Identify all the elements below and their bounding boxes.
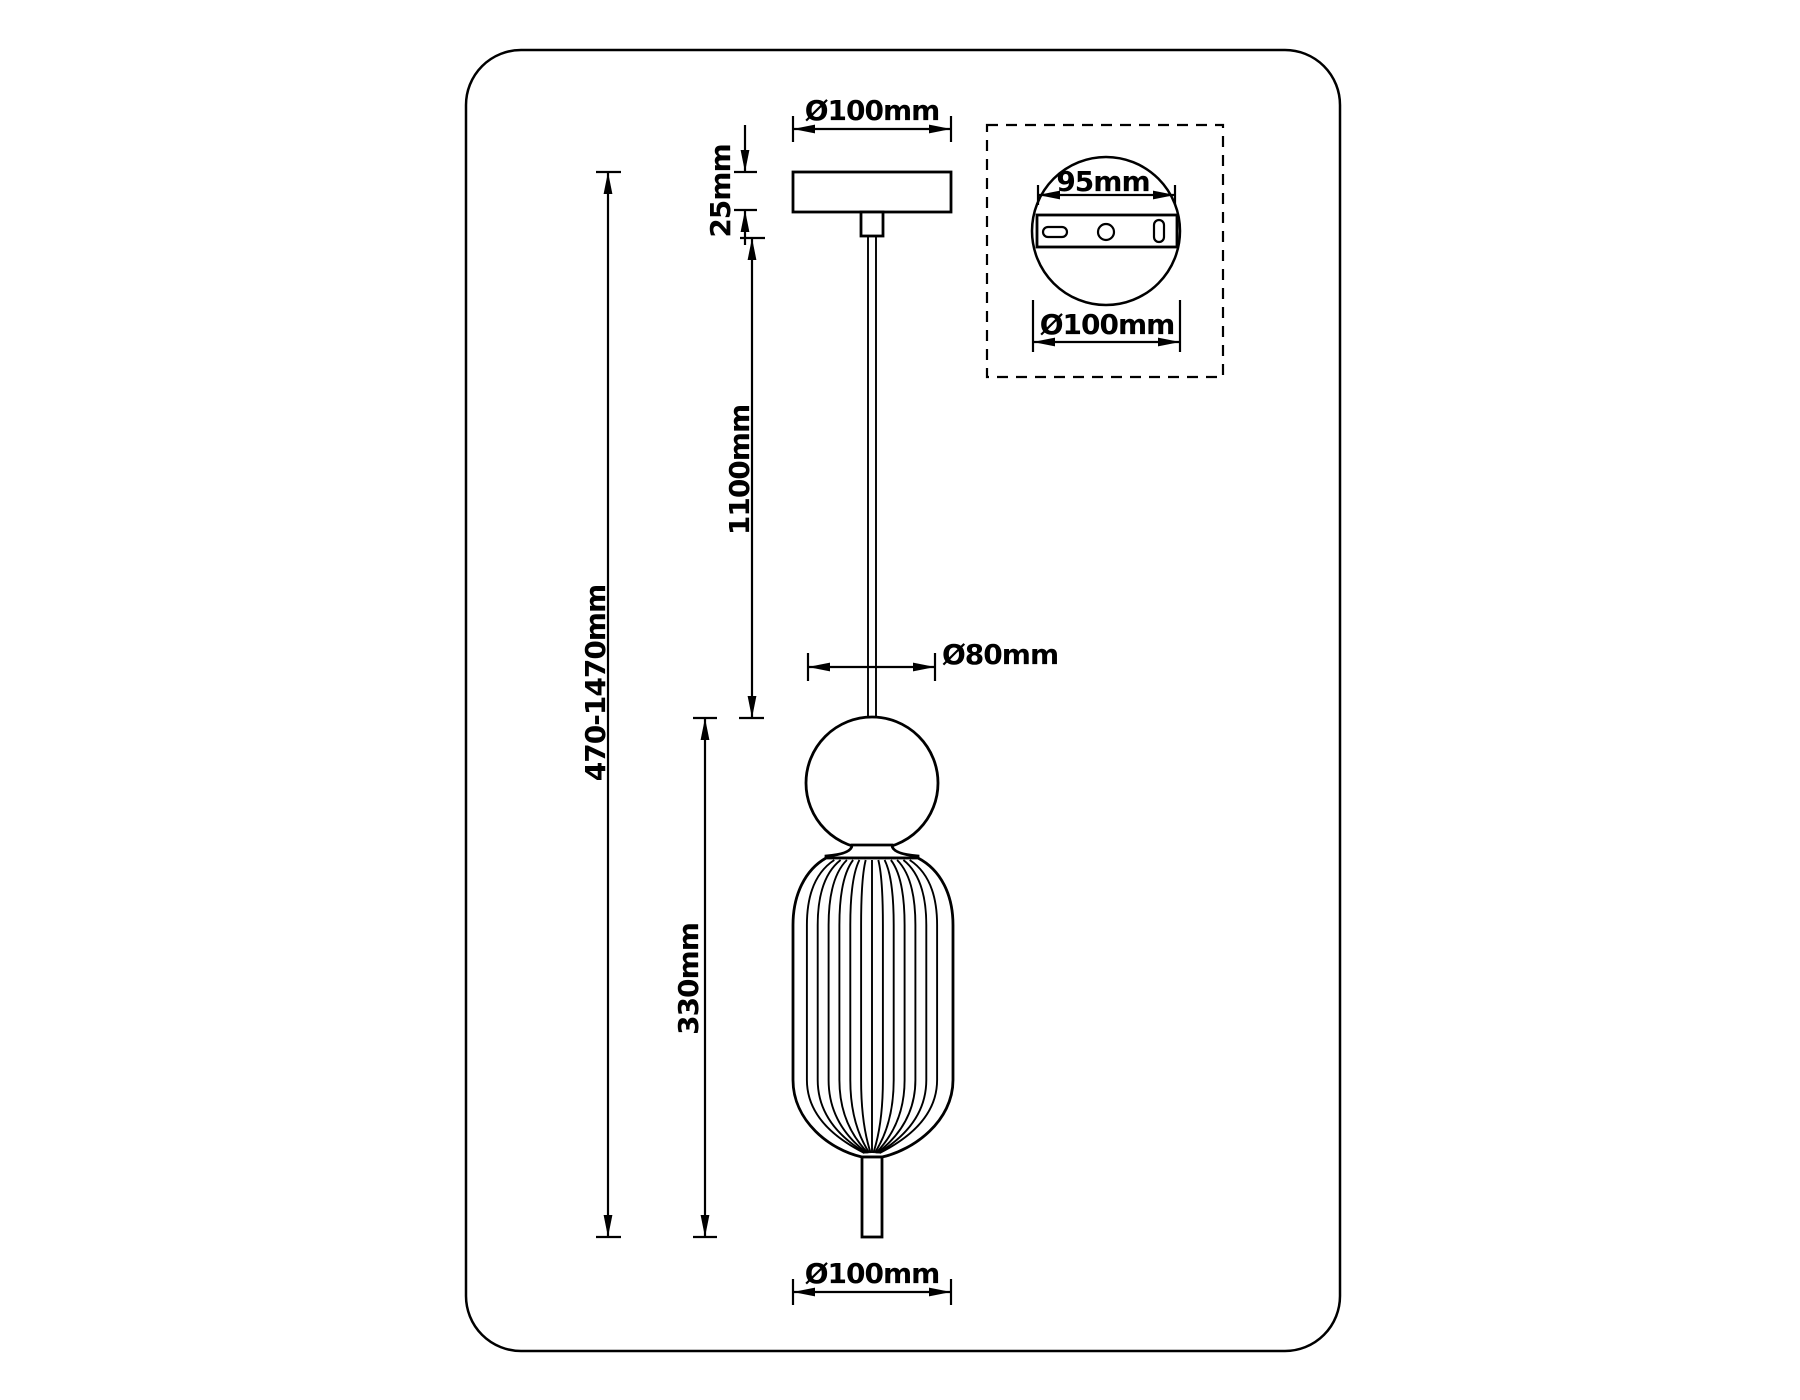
dim-plate-diameter: Ø100mm <box>1033 300 1180 352</box>
pendant-lamp-front-view <box>793 172 953 1237</box>
suspension-cable <box>868 236 876 719</box>
pendant-lamp-dimension-diagram: 95mm Ø100mm Ø100mm 25mm 1100mm <box>0 0 1800 1400</box>
technical-drawing-page: 95mm Ø100mm Ø100mm 25mm 1100mm <box>0 0 1800 1400</box>
dim-label-shade-bottom-diameter: Ø100mm <box>805 1257 940 1290</box>
dim-ball-diameter: Ø80mm <box>808 638 1058 681</box>
bracket-slot-horizontal <box>1043 227 1067 237</box>
dim-label-canopy-height: 25mm <box>704 144 737 237</box>
ribbed-shade <box>793 858 953 1157</box>
dim-overall-height: 470-1470mm <box>579 172 621 1237</box>
bracket-slot-vertical <box>1154 220 1164 242</box>
dim-label-shade-height: 330mm <box>672 923 705 1035</box>
dim-bracket-width: 95mm <box>1038 165 1175 205</box>
canopy-nipple <box>861 212 883 236</box>
dim-label-cable-length: 1100mm <box>723 405 756 535</box>
ceiling-canopy <box>793 172 951 212</box>
dim-label-ball-diameter: Ø80mm <box>942 638 1058 671</box>
bracket-center-hole <box>1098 224 1114 240</box>
bottom-stem <box>862 1157 882 1237</box>
dim-shade-height: 330mm <box>672 718 717 1237</box>
decor-ball <box>806 717 938 849</box>
dim-label-canopy-diameter: Ø100mm <box>805 94 940 127</box>
dim-canopy-diameter: Ø100mm <box>793 94 951 142</box>
shade-collar <box>826 845 918 858</box>
dim-label-plate-diameter: Ø100mm <box>1040 308 1175 341</box>
dim-shade-bottom-diameter: Ø100mm <box>793 1257 951 1305</box>
dim-canopy-height: 25mm <box>704 125 757 245</box>
dim-cable-length: 1100mm <box>723 238 765 718</box>
mounting-plate-detail: 95mm Ø100mm <box>987 125 1223 377</box>
dim-label-overall-height: 470-1470mm <box>579 585 612 781</box>
dim-label-bracket-width: 95mm <box>1056 165 1149 198</box>
